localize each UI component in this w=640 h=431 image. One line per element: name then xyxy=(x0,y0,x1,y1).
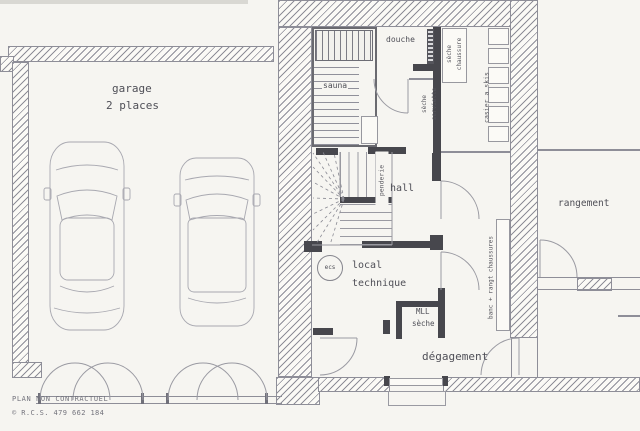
wall-bottom-right xyxy=(443,377,640,392)
mll-label: MLL xyxy=(416,308,430,316)
wall-building-top xyxy=(278,0,538,27)
seche-serviette-line2: serviette xyxy=(430,88,440,121)
wall-stairs-top-a xyxy=(316,148,338,155)
post-garage-2 xyxy=(141,393,144,404)
garage-label: garage xyxy=(112,83,152,94)
hot-water-tank-label: ecs xyxy=(325,265,336,271)
seche-chaussure-label: sèche chaussure xyxy=(443,32,467,76)
line-terrace-step xyxy=(618,315,640,317)
degagement-door-left xyxy=(320,338,357,375)
sauna-label: sauna xyxy=(322,82,348,90)
wall-hall-right-upper xyxy=(432,153,441,181)
casier-skis-label: casier a skis xyxy=(481,68,494,128)
car-top-view-2 xyxy=(174,158,260,326)
floor-plan: ecs xyxy=(0,0,640,431)
line-rangement-top xyxy=(538,149,640,151)
seche-chaussure-line1: sèche xyxy=(445,45,455,63)
seche-serviette-line1: sèche xyxy=(420,95,430,113)
wall-mll-right xyxy=(438,288,445,338)
wall-garage-left xyxy=(12,62,29,378)
footer-disclaimer: PLAN NON CONTRACTUEL xyxy=(12,396,108,403)
wall-garage-top xyxy=(8,46,274,62)
rangement-label: rangement xyxy=(558,199,609,209)
line-douche-partition xyxy=(409,78,434,80)
hall-label: hall xyxy=(390,184,414,194)
penderie-label: penderie xyxy=(376,152,389,210)
line-rangement-bottom-a xyxy=(538,277,640,278)
douche-label: douche xyxy=(386,36,415,44)
wall-garage-bottom-stub xyxy=(12,362,42,378)
post-garage-4 xyxy=(265,393,268,404)
wall-garage-bottom-right xyxy=(276,377,320,405)
line-garage-sill-b xyxy=(36,403,282,404)
ski-locker-cell xyxy=(488,28,509,45)
douche-door xyxy=(374,79,408,113)
wall-degagement-b xyxy=(383,320,390,334)
footer-rcs: © R.C.S. 479 662 184 xyxy=(12,410,104,417)
banc-rangt-chaussures-label: banc + rangt chaussures xyxy=(486,230,499,326)
line-corridor-top xyxy=(441,151,510,153)
casier-skis-text: casier a skis xyxy=(481,72,492,123)
rangement-door xyxy=(540,240,577,277)
line-rangement-bottom-b xyxy=(538,289,640,290)
hall-door-lower xyxy=(441,252,479,290)
sauna-bench-horizontal-slats xyxy=(314,63,359,145)
wall-technique-top-a xyxy=(304,241,322,252)
shower-tray xyxy=(361,116,378,144)
wall-degagement-a xyxy=(313,328,333,335)
wall-douche-stub xyxy=(413,64,434,71)
ski-locker-cell xyxy=(488,126,509,143)
wall-building-left xyxy=(278,27,312,377)
sauna-bench-vertical-slats xyxy=(315,30,373,61)
post-garage-3 xyxy=(166,393,169,404)
wall-bottom-left xyxy=(318,377,390,392)
seche-chaussure-line2: chaussure xyxy=(455,38,465,71)
towel-dryer-radiator xyxy=(427,29,434,64)
banc-text: banc + rangt chaussures xyxy=(487,236,497,319)
seche-serviette-label: sèche serviette xyxy=(418,82,442,126)
line-passage-right xyxy=(537,291,538,377)
ski-locker-cell xyxy=(488,48,509,65)
hall-door-upper xyxy=(441,181,479,219)
local-technique-label-line2: technique xyxy=(352,279,406,289)
degagement-label: dégagement xyxy=(422,351,488,362)
seche-linge-label: sèche xyxy=(412,320,435,328)
penderie-text: penderie xyxy=(376,165,387,196)
entry-step xyxy=(388,391,446,406)
entry-window xyxy=(389,378,443,386)
hot-water-tank: ecs xyxy=(317,255,343,281)
line-passage-left xyxy=(511,338,512,377)
scan-edge xyxy=(0,0,248,4)
wall-building-right xyxy=(510,0,538,338)
local-technique-label-line1: local xyxy=(352,261,382,271)
car-top-view-1 xyxy=(44,142,130,330)
garage-capacity-label: 2 places xyxy=(106,100,159,111)
